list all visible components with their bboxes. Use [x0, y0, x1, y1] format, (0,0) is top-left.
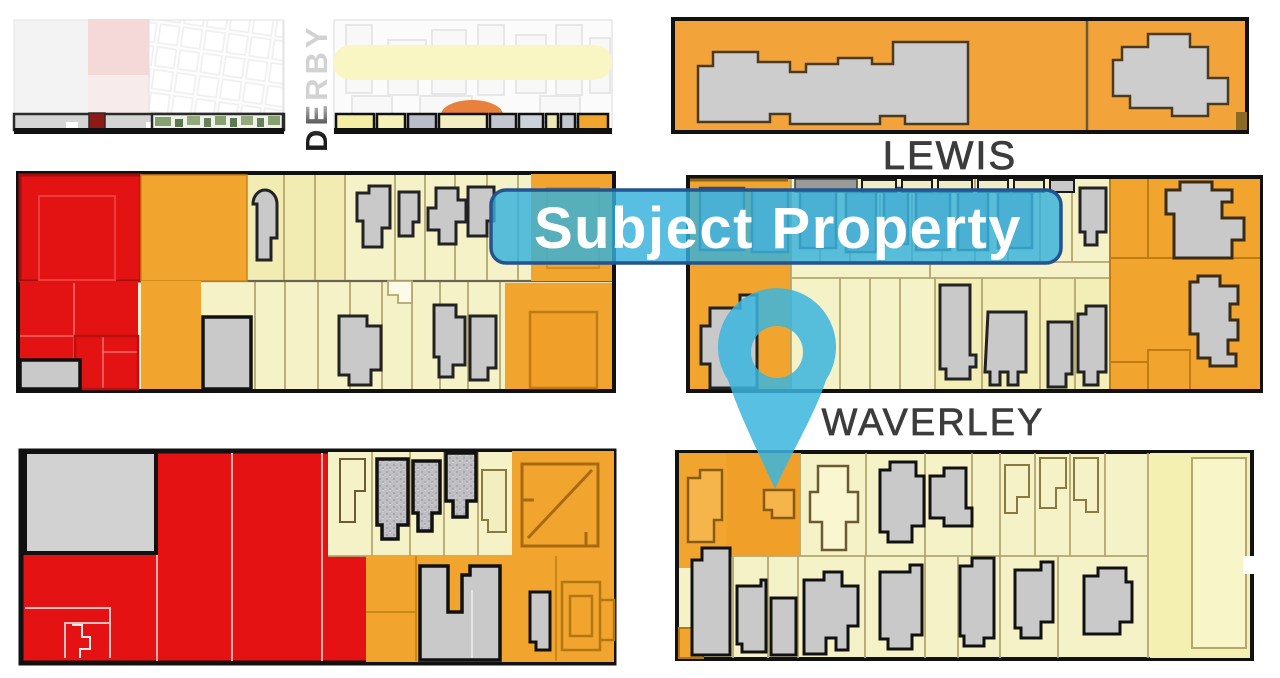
svg-text:Subject Property: Subject Property: [534, 196, 1022, 261]
svg-text:LEWIS: LEWIS: [883, 134, 1017, 178]
svg-text:DERBY: DERBY: [299, 23, 334, 152]
svg-text:WAVERLEY: WAVERLEY: [822, 402, 1045, 444]
